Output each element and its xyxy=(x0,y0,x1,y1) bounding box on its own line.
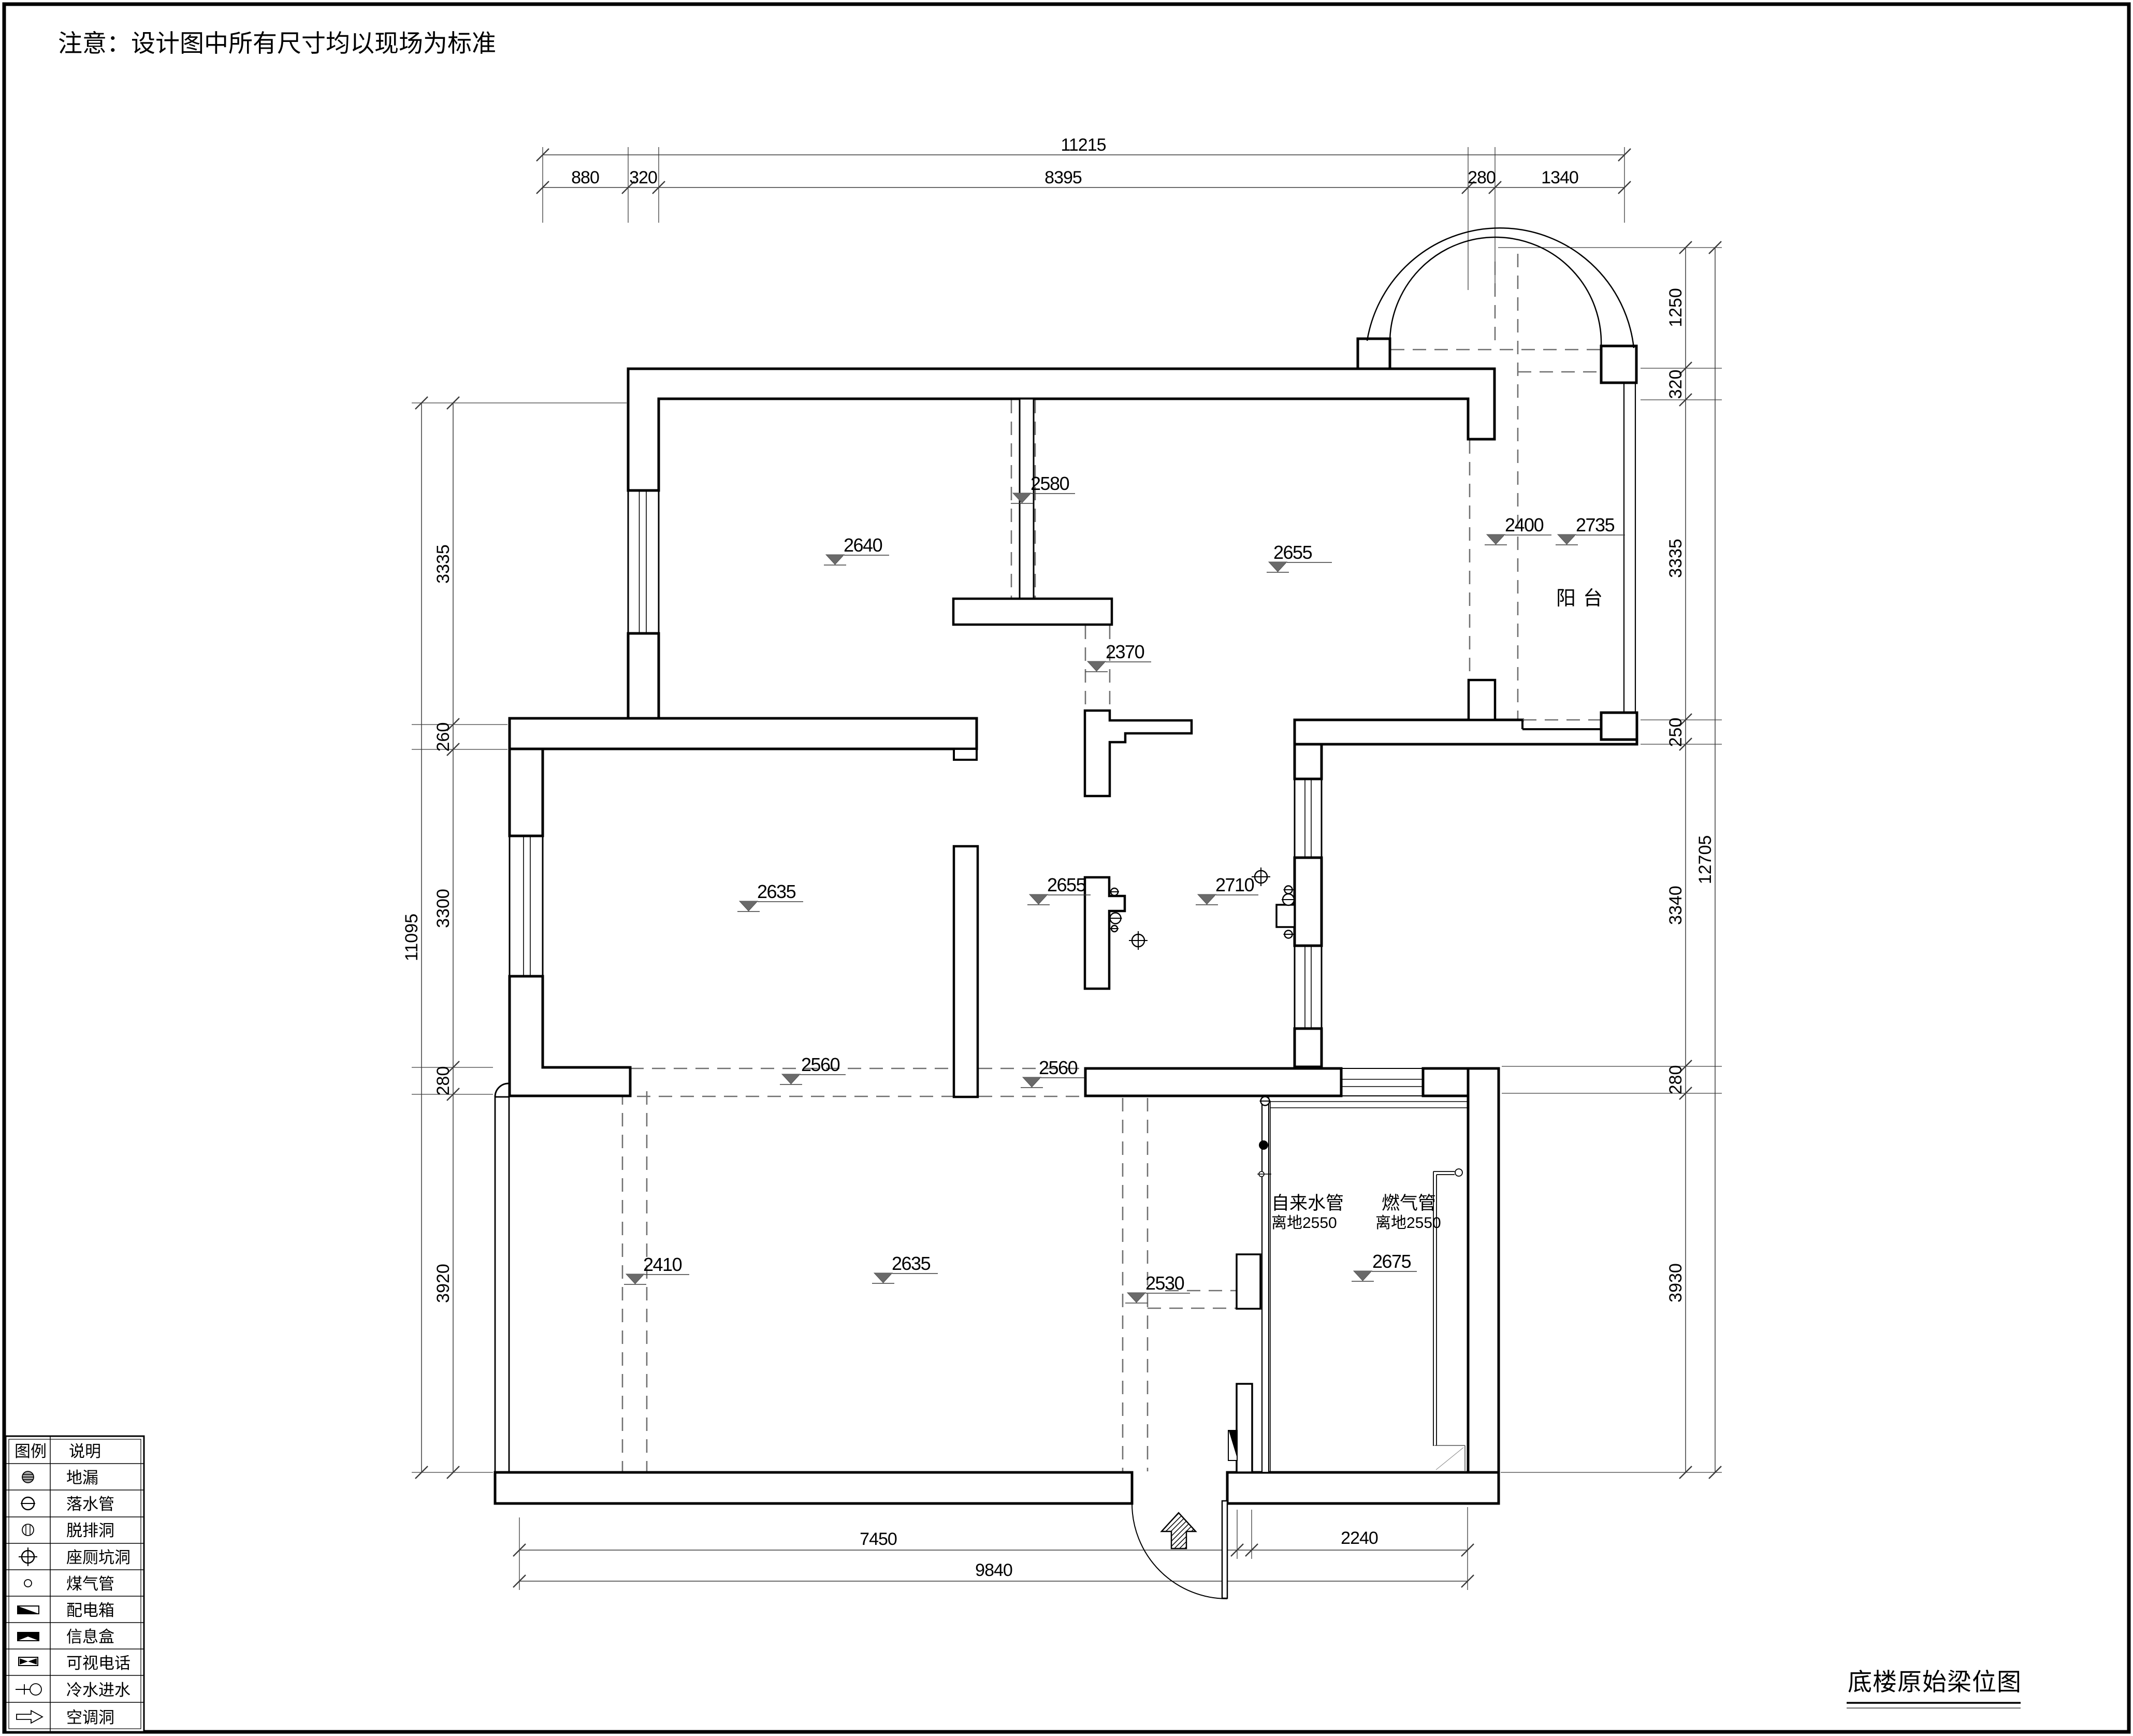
svg-text:1340: 1340 xyxy=(1541,168,1578,187)
svg-text:880: 880 xyxy=(571,168,599,187)
svg-text:280: 280 xyxy=(1666,1065,1686,1095)
svg-text:说明: 说明 xyxy=(69,1442,101,1460)
svg-text:7450: 7450 xyxy=(860,1529,897,1549)
svg-text:3340: 3340 xyxy=(1666,886,1686,925)
svg-text:落水管: 落水管 xyxy=(66,1495,114,1513)
svg-text:可视电话: 可视电话 xyxy=(66,1654,130,1672)
svg-text:信息盒: 信息盒 xyxy=(66,1628,114,1646)
svg-text:2675: 2675 xyxy=(1372,1251,1411,1272)
svg-text:3300: 3300 xyxy=(433,889,453,928)
svg-text:煤气管: 煤气管 xyxy=(66,1575,114,1593)
svg-text:离地2550: 离地2550 xyxy=(1375,1214,1441,1232)
svg-text:2530: 2530 xyxy=(1145,1272,1184,1294)
svg-text:2240: 2240 xyxy=(1341,1528,1378,1548)
svg-text:1250: 1250 xyxy=(1666,288,1686,327)
svg-text:280: 280 xyxy=(1468,168,1496,187)
svg-text:自来水管: 自来水管 xyxy=(1271,1193,1344,1213)
svg-text:260: 260 xyxy=(433,722,453,752)
svg-text:座厕坑洞: 座厕坑洞 xyxy=(66,1549,130,1567)
svg-text:2735: 2735 xyxy=(1576,514,1615,536)
svg-text:12705: 12705 xyxy=(1695,835,1715,885)
svg-text:3930: 3930 xyxy=(1666,1263,1686,1303)
svg-text:250: 250 xyxy=(1666,718,1686,747)
svg-text:2635: 2635 xyxy=(757,881,796,902)
svg-text:2370: 2370 xyxy=(1106,641,1144,662)
svg-text:离地2550: 离地2550 xyxy=(1271,1214,1337,1232)
svg-text:2410: 2410 xyxy=(643,1254,682,1275)
svg-text:320: 320 xyxy=(1666,370,1686,399)
svg-text:3335: 3335 xyxy=(433,544,453,584)
svg-text:地漏: 地漏 xyxy=(66,1469,98,1487)
svg-text:2655: 2655 xyxy=(1273,542,1312,563)
svg-text:8395: 8395 xyxy=(1044,168,1082,187)
svg-text:燃气管: 燃气管 xyxy=(1382,1193,1436,1213)
svg-text:2640: 2640 xyxy=(844,534,882,556)
svg-text:3920: 3920 xyxy=(433,1264,453,1303)
svg-text:11215: 11215 xyxy=(1061,135,1106,155)
svg-text:3335: 3335 xyxy=(1666,539,1686,578)
svg-text:320: 320 xyxy=(629,168,657,187)
svg-text:2635: 2635 xyxy=(892,1253,931,1274)
svg-text:2560: 2560 xyxy=(801,1054,840,1075)
svg-text:2710: 2710 xyxy=(1215,874,1254,895)
svg-text:底楼原始梁位图: 底楼原始梁位图 xyxy=(1848,1668,2022,1696)
svg-text:冷水进水: 冷水进水 xyxy=(66,1681,130,1699)
svg-text:2400: 2400 xyxy=(1505,514,1544,536)
svg-text:9840: 9840 xyxy=(975,1560,1012,1580)
svg-text:2655: 2655 xyxy=(1047,874,1086,895)
svg-text:脱排洞: 脱排洞 xyxy=(66,1522,114,1540)
svg-text:配电箱: 配电箱 xyxy=(66,1601,114,1619)
svg-text:空调洞: 空调洞 xyxy=(66,1709,114,1727)
svg-text:11095: 11095 xyxy=(402,914,422,961)
svg-text:2560: 2560 xyxy=(1039,1057,1078,1078)
svg-text:注意：设计图中所有尺寸均以现场为标准: 注意：设计图中所有尺寸均以现场为标准 xyxy=(58,30,496,57)
svg-text:2580: 2580 xyxy=(1031,473,1069,494)
svg-text:280: 280 xyxy=(433,1066,453,1096)
svg-text:图例: 图例 xyxy=(14,1442,47,1460)
svg-text:阳台: 阳台 xyxy=(1556,588,1610,610)
